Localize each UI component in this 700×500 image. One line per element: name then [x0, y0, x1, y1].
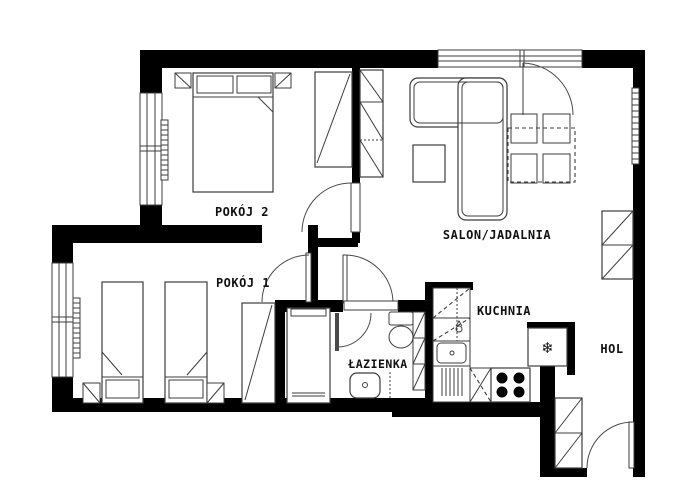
bathroom-fixtures	[287, 308, 425, 403]
single-bed-2	[165, 282, 207, 403]
hall-furniture	[555, 398, 582, 468]
room-label-lazienka: ŁAZIENKA	[348, 357, 407, 371]
door-entry	[587, 422, 634, 468]
wall-segment	[540, 468, 587, 477]
kitchen-sink	[437, 343, 466, 363]
pokoj1-furniture	[83, 282, 275, 403]
floor-plan-drawing: ❄	[0, 0, 700, 500]
room-label-pokoj-1: POKÓJ 1	[216, 276, 270, 290]
wardrobe-pokoj2	[315, 72, 352, 167]
dining-set	[508, 114, 575, 183]
nightstand-bed2	[207, 383, 224, 403]
fridge-snowflake-icon: ❄	[541, 339, 554, 357]
bathroom-sink	[350, 372, 390, 398]
wall-segment	[425, 282, 433, 402]
chair	[543, 154, 570, 183]
room-label-salon-jadalnia: SALON/JADALNIA	[443, 228, 551, 242]
wardrobe-pokoj1	[242, 303, 275, 403]
wall-segment	[140, 50, 438, 68]
nightstand-right	[275, 73, 291, 88]
wall-segment	[567, 322, 575, 375]
chair	[511, 154, 537, 183]
wall-segment	[352, 232, 360, 243]
wall-segment	[425, 402, 557, 417]
window-pokoj1	[52, 263, 73, 377]
nightstand-left	[175, 73, 191, 88]
coffee-table	[413, 145, 445, 182]
door-bathroom	[344, 301, 398, 310]
room-label-kuchnia: KUCHNIA	[477, 304, 531, 318]
wall-segment	[275, 300, 285, 398]
room-label-hol: HOL	[600, 342, 623, 356]
stove	[491, 368, 530, 402]
toilet	[389, 312, 413, 348]
wall-segment	[582, 50, 645, 68]
door-vestibule	[343, 255, 393, 303]
single-bed-1	[102, 282, 143, 403]
window-pokoj2	[140, 93, 162, 205]
wall-segment	[140, 50, 162, 93]
nightstand-bed1	[83, 383, 100, 403]
wardrobe-salon-right	[602, 211, 633, 279]
radiator-pokoj2	[161, 120, 168, 180]
floor-plan-page: { "floorplan": { "background_color": "#f…	[0, 0, 700, 500]
wardrobe-salon-left	[360, 70, 383, 177]
fridge: ❄	[528, 328, 567, 366]
kitchen-counter-column	[433, 288, 470, 402]
door-balcony	[523, 63, 573, 115]
bathroom-shelves	[413, 312, 425, 390]
radiator-salon	[632, 88, 639, 164]
wall-segment	[633, 468, 645, 477]
balcony-window-salon	[438, 50, 582, 67]
salon-furniture	[360, 70, 633, 279]
wall-segment	[352, 68, 360, 183]
door-pokoj2	[302, 183, 360, 232]
kitchen-corner-cabinet	[470, 368, 491, 402]
wall-segment	[540, 366, 555, 477]
radiator-pokoj1	[73, 298, 80, 358]
wall-segment	[52, 243, 73, 263]
double-bed	[193, 73, 273, 192]
wall-segment	[52, 225, 262, 243]
wardrobe-hall	[555, 398, 582, 468]
room-label-pokoj-2: POKÓJ 2	[215, 205, 269, 219]
pokoj2-furniture	[175, 72, 352, 192]
